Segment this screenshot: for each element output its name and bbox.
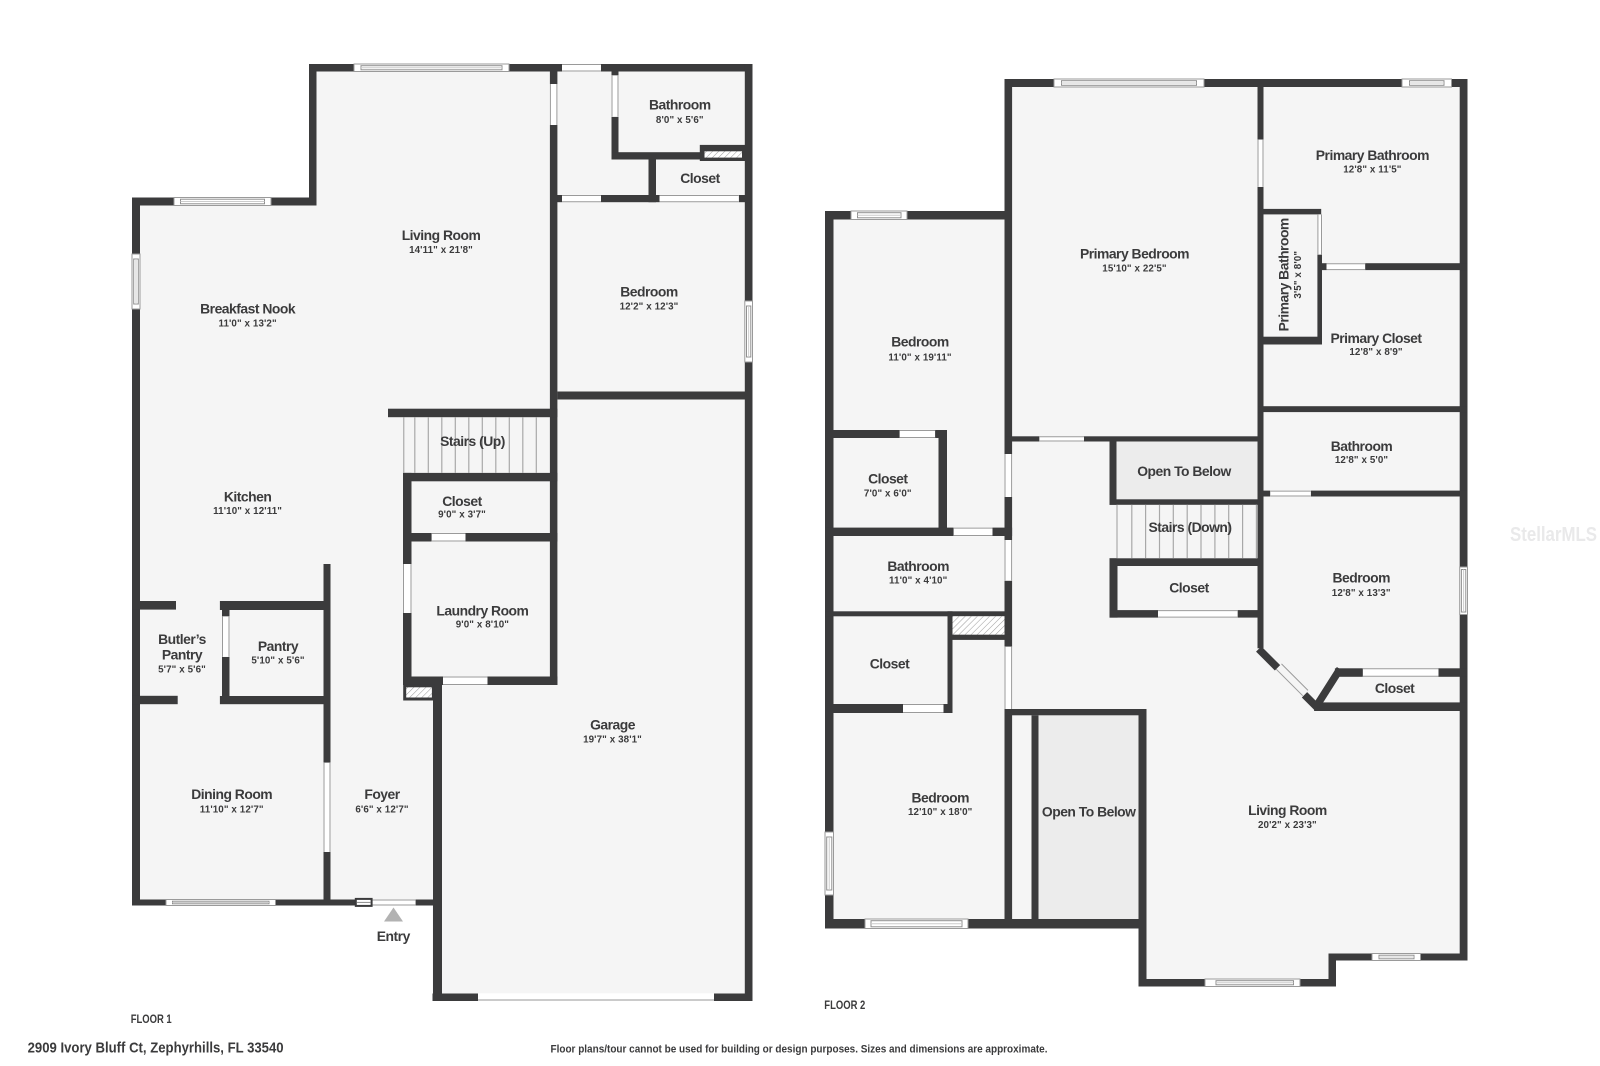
- svg-text:Closet: Closet: [1169, 579, 1209, 595]
- svg-text:6'6" x 12'7": 6'6" x 12'7": [355, 804, 408, 815]
- svg-text:Foyer: Foyer: [364, 786, 400, 802]
- svg-text:8'0" x 5'6": 8'0" x 5'6": [656, 115, 704, 126]
- svg-text:Bedroom: Bedroom: [1332, 570, 1390, 586]
- svg-text:7'0" x 6'0": 7'0" x 6'0": [864, 489, 912, 500]
- svg-text:Primary Bedroom: Primary Bedroom: [1080, 246, 1189, 262]
- svg-text:11'0" x 13'2": 11'0" x 13'2": [218, 318, 276, 329]
- svg-text:15'10" x 22'5": 15'10" x 22'5": [1102, 263, 1166, 274]
- svg-text:Closet: Closet: [868, 471, 908, 487]
- svg-text:Closet: Closet: [442, 493, 482, 509]
- svg-text:StellarMLS: StellarMLS: [1510, 524, 1597, 546]
- svg-text:Bathroom: Bathroom: [1331, 438, 1393, 454]
- svg-text:12'8" x 5'0": 12'8" x 5'0": [1335, 455, 1388, 466]
- svg-text:Open To Below: Open To Below: [1042, 804, 1136, 820]
- svg-text:11'10" x 12'7": 11'10" x 12'7": [200, 804, 264, 815]
- svg-text:Open To Below: Open To Below: [1137, 463, 1231, 479]
- svg-text:11'0" x 4'10": 11'0" x 4'10": [889, 576, 947, 587]
- svg-text:Stairs (Down): Stairs (Down): [1148, 519, 1231, 535]
- svg-text:Primary Closet: Primary Closet: [1330, 330, 1422, 346]
- svg-text:20'2" x 23'3": 20'2" x 23'3": [1258, 820, 1317, 831]
- svg-text:2909 Ivory Bluff Ct, Zephyrhil: 2909 Ivory Bluff Ct, Zephyrhills, FL 335…: [28, 1040, 284, 1057]
- svg-text:Living Room: Living Room: [402, 227, 481, 243]
- svg-text:Closet: Closet: [870, 656, 910, 672]
- svg-text:Butler’s: Butler’s: [158, 631, 206, 647]
- svg-text:11'0" x 19'11": 11'0" x 19'11": [888, 352, 951, 363]
- svg-text:Kitchen: Kitchen: [224, 489, 271, 505]
- svg-text:Bedroom: Bedroom: [911, 789, 969, 805]
- svg-text:Laundry Room: Laundry Room: [436, 603, 528, 619]
- svg-text:Primary Bathroom: Primary Bathroom: [1316, 147, 1429, 163]
- svg-text:3'5" x 8'0": 3'5" x 8'0": [1293, 251, 1304, 299]
- svg-text:Breakfast Nook: Breakfast Nook: [200, 301, 296, 317]
- svg-text:14'11" x 21'8": 14'11" x 21'8": [409, 245, 473, 256]
- svg-text:Dining Room: Dining Room: [191, 786, 272, 802]
- svg-text:Floor plans/tour cannot be use: Floor plans/tour cannot be used for buil…: [551, 1043, 1048, 1055]
- svg-text:11'10" x 12'11": 11'10" x 12'11": [213, 506, 282, 517]
- svg-text:5'10" x 5'6": 5'10" x 5'6": [251, 655, 304, 666]
- svg-text:Primary Bathroom: Primary Bathroom: [1275, 218, 1291, 331]
- svg-text:Bathroom: Bathroom: [649, 97, 711, 113]
- svg-text:Pantry: Pantry: [162, 647, 203, 663]
- svg-text:12'10" x 18'0": 12'10" x 18'0": [908, 807, 972, 818]
- svg-text:12'8" x 11'5": 12'8" x 11'5": [1343, 165, 1401, 176]
- svg-text:FLOOR 1: FLOOR 1: [131, 1012, 172, 1026]
- svg-text:Closet: Closet: [1375, 680, 1415, 696]
- svg-text:5'7" x 5'6": 5'7" x 5'6": [158, 665, 206, 676]
- svg-text:Living Room: Living Room: [1248, 802, 1327, 818]
- svg-text:Entry: Entry: [377, 928, 411, 944]
- svg-text:12'8" x 13'3": 12'8" x 13'3": [1332, 588, 1391, 599]
- svg-text:Stairs (Up): Stairs (Up): [440, 433, 505, 449]
- svg-text:9'0" x 3'7": 9'0" x 3'7": [438, 510, 486, 521]
- svg-text:Pantry: Pantry: [258, 638, 299, 654]
- svg-text:Closet: Closet: [680, 170, 720, 186]
- svg-text:12'2" x 12'3": 12'2" x 12'3": [620, 302, 679, 313]
- svg-text:Bedroom: Bedroom: [891, 334, 949, 350]
- svg-text:Bedroom: Bedroom: [620, 284, 678, 300]
- svg-text:9'0" x 8'10": 9'0" x 8'10": [456, 620, 509, 631]
- svg-text:FLOOR 2: FLOOR 2: [824, 998, 865, 1012]
- svg-text:Garage: Garage: [590, 716, 636, 732]
- svg-text:Bathroom: Bathroom: [887, 558, 949, 574]
- svg-text:19'7" x 38'1": 19'7" x 38'1": [583, 734, 642, 745]
- svg-text:12'8" x 8'9": 12'8" x 8'9": [1349, 347, 1402, 358]
